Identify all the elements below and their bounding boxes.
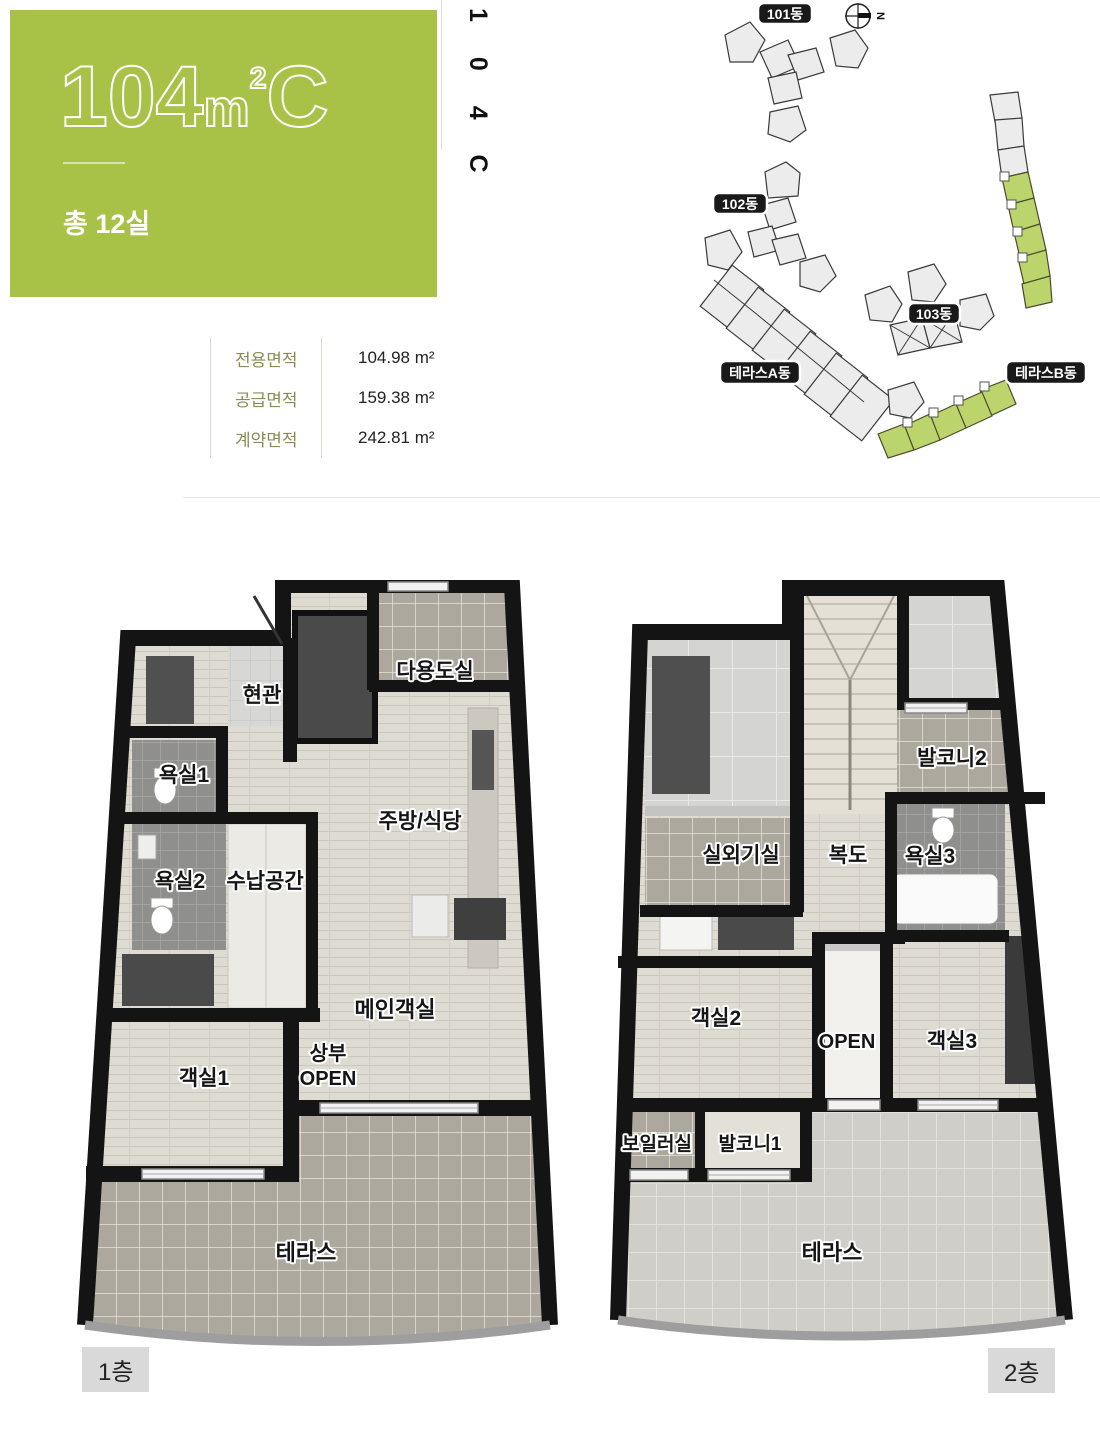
site-map: N (650, 0, 1100, 470)
bathtub (892, 874, 998, 924)
refrigerator (454, 898, 506, 940)
area-label: 전용면적 (210, 338, 322, 378)
label-entry: 현관 (243, 684, 282, 707)
label-bath3: 욕실3 (905, 845, 955, 868)
room-count: 총 12실 (63, 202, 150, 241)
hero-panel: 104m2C 총 12실 (10, 10, 437, 297)
badge-102: 102동 (722, 196, 758, 212)
toilet (932, 817, 954, 843)
sill (645, 806, 790, 816)
label-terrace2: 테라스 (802, 1240, 863, 1265)
shower-tray (412, 895, 448, 937)
label-open: OPEN (819, 1031, 876, 1053)
dresser (660, 914, 712, 950)
vertical-rule (441, 0, 442, 150)
badge-terrace-b: 테라스B동 (1015, 365, 1077, 381)
sink (138, 835, 156, 859)
staircase (804, 588, 897, 814)
label-balcony1: 발코니1 (718, 1133, 781, 1155)
badge-terrace-a: 테라스A동 (729, 365, 791, 381)
area-value: 242.81 m² (322, 428, 435, 448)
label-kitchen: 주방/식당 (378, 810, 461, 833)
shoe-closet (146, 656, 194, 724)
label-outdoor-unit: 실외기실 (702, 844, 779, 867)
terrace-a-chain (700, 265, 894, 441)
label-main-room: 메인객실 (355, 997, 436, 1022)
label-utility: 다용도실 (396, 660, 473, 683)
page-title: 104m2C (60, 49, 329, 145)
cluster-101 (725, 22, 868, 142)
area-value: 104.98 m² (322, 348, 435, 368)
stove (472, 730, 494, 790)
badge-101: 101동 (767, 6, 803, 22)
area-table: 전용면적 104.98 m² 공급면적 159.38 m² 계약면적 242.8… (210, 338, 540, 458)
compass-icon: N (845, 3, 886, 29)
badge-103: 103동 (916, 306, 952, 322)
floor-plan-2f: 실외기실 복도 발코니2 욕실3 객실2 OPEN 객실3 보일러실 발코니1 … (600, 580, 1080, 1355)
closet (718, 914, 794, 950)
label-boiler: 보일러실 (622, 1133, 692, 1155)
label-room1: 객실1 (179, 1067, 230, 1090)
table-row: 계약면적 242.81 m² (210, 418, 540, 458)
label-upper-open-2: OPEN (300, 1068, 357, 1090)
label-corridor: 복도 (829, 844, 868, 867)
ac-unit-area (652, 656, 710, 794)
floor-badge-2f: 2층 (988, 1348, 1055, 1393)
hero-divider (63, 162, 125, 164)
storage-cabinets (228, 824, 306, 1008)
wardrobe (295, 613, 375, 741)
label-room3: 객실3 (927, 1030, 977, 1053)
roof-area (909, 588, 997, 700)
unit-brochure-page: 104m2C 총 12실 1 0 4 C N (0, 0, 1100, 1429)
label-terrace: 테라스 (276, 1240, 337, 1265)
hero-title: 104m2C (58, 26, 418, 156)
label-balcony2: 발코니2 (917, 747, 987, 770)
floor-plan-1f: 현관 다용도실 욕실1 주방/식당 욕실2 수납공간 메인객실 객실1 상부 O… (70, 580, 560, 1355)
vertical-unit-code: 1 0 4 C (458, 6, 492, 186)
label-storage: 수납공간 (226, 870, 303, 893)
label-bath1: 욕실1 (159, 764, 210, 787)
toilet (151, 906, 173, 934)
label-upper-open-1: 상부 (310, 1042, 347, 1065)
label-bath2: 욕실2 (155, 870, 205, 893)
label-room2: 객실2 (691, 1007, 741, 1030)
table-row: 공급면적 159.38 m² (210, 378, 540, 418)
floor-badge-1f: 1층 (82, 1347, 149, 1392)
section-divider (183, 497, 1100, 498)
open-void (825, 942, 880, 1100)
area-label: 공급면적 (210, 378, 322, 418)
closet (122, 954, 214, 1006)
cluster-102 (705, 162, 836, 292)
compass-north-label: N (874, 12, 886, 20)
area-label: 계약면적 (210, 418, 322, 458)
table-row: 전용면적 104.98 m² (210, 338, 540, 378)
area-value: 159.38 m² (322, 388, 435, 408)
